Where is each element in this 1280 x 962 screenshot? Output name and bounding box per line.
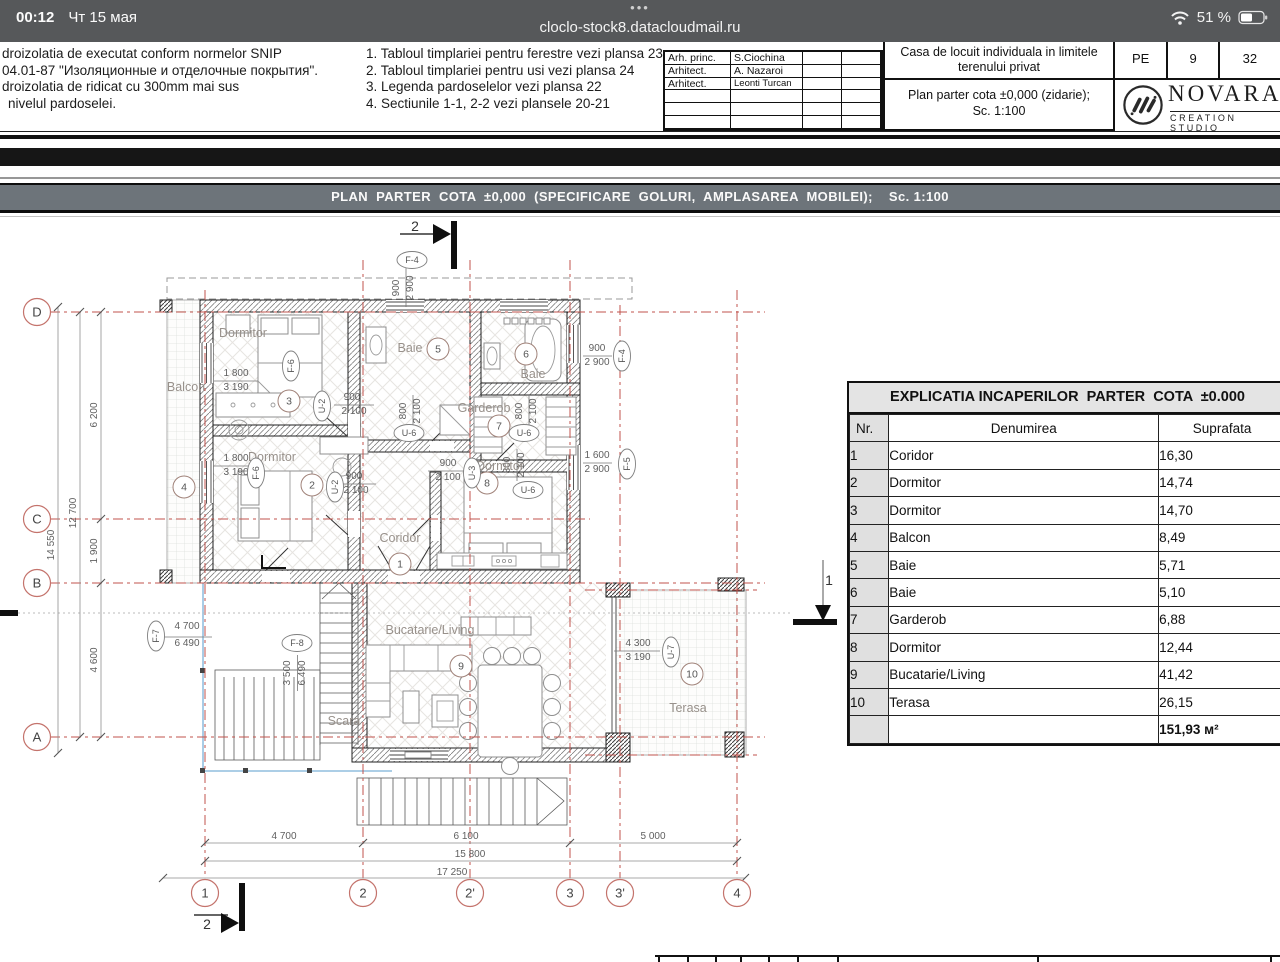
- drawing-scale: Sc. 1:100: [885, 103, 1113, 119]
- note-line: 1. Tabloul timplariei pentru ferestre ve…: [366, 46, 663, 63]
- dimension-label: 800: [398, 402, 409, 419]
- opening-tag-label: U-2: [330, 480, 340, 495]
- battery-percent: 51 %: [1197, 9, 1231, 26]
- table-cell: Baie: [889, 551, 1159, 578]
- header-suprafata: Suprafata: [1159, 415, 1280, 442]
- empty-cell: [842, 103, 881, 116]
- drawing-title-line: Plan parter cota ±0,000 (zidarie);: [885, 87, 1113, 103]
- room-number-label: 10: [686, 669, 698, 681]
- note-line: droizolatia de executat conform normelor…: [2, 46, 318, 63]
- dimension-label: 6 490: [174, 638, 199, 649]
- total-name-cell: [889, 716, 1159, 743]
- notes-right: 1. Tabloul timplariei pentru ferestre ve…: [366, 46, 663, 112]
- novara-logo-icon: [1120, 82, 1166, 128]
- opening-tag-label: F-5: [622, 457, 632, 471]
- section-label: 2: [203, 916, 211, 932]
- logo: NOVARA CREATION STUDIO: [1115, 80, 1280, 130]
- room-label: Garderob: [458, 401, 511, 415]
- table-cell: 12,44: [1159, 634, 1280, 661]
- status-bar: 00:12Чт 15 мая ••• cloclo-stock8.dataclo…: [0, 0, 1280, 42]
- kitchen-counter: [437, 553, 567, 569]
- table-row: 2Dormitor14,74: [850, 469, 1280, 496]
- section-marker-1-right: [793, 560, 837, 625]
- opening-tag-label: U-3: [467, 466, 477, 481]
- dimension-label: 17 250: [437, 867, 468, 878]
- opening-tag-label: F-6: [286, 359, 296, 373]
- divider: [0, 131, 1280, 132]
- room-label: Balcon: [167, 380, 205, 394]
- dimension-label: 6 490: [297, 660, 308, 685]
- table-row: 9Bucatarie/Living41,42: [850, 661, 1280, 688]
- opening-tag-label: F-4: [617, 349, 627, 363]
- table-header-row: Nr. Denumirea Suprafata: [850, 415, 1280, 442]
- dimension-label: 4 700: [271, 831, 296, 842]
- dimension-label: 2 100: [341, 406, 366, 417]
- divider: [0, 135, 1280, 139]
- room-number-label: 7: [496, 421, 502, 433]
- empty-cell: [803, 52, 842, 65]
- empty-cell: [803, 103, 842, 116]
- axis-bubble-label: A: [33, 730, 42, 745]
- total-nr-cell: [850, 716, 889, 743]
- table-row: 8Dormitor12,44: [850, 634, 1280, 661]
- table-cell: Dormitor: [889, 634, 1159, 661]
- drawing-title: Plan parter cota ±0,000 (zidarie); Sc. 1…: [885, 80, 1113, 135]
- room-number-label: 8: [484, 478, 490, 490]
- dimension-label: 6 200: [89, 402, 100, 427]
- room-label: Baie: [520, 367, 545, 381]
- sheet-total-cell: 32: [1220, 42, 1280, 78]
- dimension-label: 3 190: [223, 467, 248, 478]
- axis-bubble-label: 3': [615, 886, 625, 901]
- table-cell: 10: [850, 688, 889, 715]
- tv-stand: [432, 695, 458, 727]
- room-label: Scara: [328, 714, 361, 728]
- empty-cell: [842, 90, 881, 103]
- dimension-label: 12 700: [68, 497, 79, 528]
- table-cell: 14,74: [1159, 469, 1280, 496]
- table-cell: 5: [850, 551, 889, 578]
- table-cell: 8: [850, 634, 889, 661]
- room-label: Bucatarie/Living: [386, 623, 475, 637]
- divider: [0, 177, 1280, 179]
- logo-name: NOVARA: [1168, 81, 1280, 107]
- role-cell: Arhitect.: [665, 78, 731, 91]
- empty-cell: [665, 103, 731, 116]
- dimension-label: 14 550: [46, 529, 57, 560]
- room-table-body: 1Coridor16,302Dormitor14,743Dormitor14,7…: [850, 442, 1280, 716]
- table-cell: Dormitor: [889, 497, 1159, 524]
- dimension-label: 1 600: [584, 450, 609, 461]
- table-cell: 9: [850, 661, 889, 688]
- room-label: Baie: [397, 341, 422, 355]
- role-cell: Arhitect.: [665, 65, 731, 78]
- table-cell: 6: [850, 579, 889, 606]
- table-cell: Terasa: [889, 688, 1159, 715]
- dimension-label: 900: [391, 279, 402, 296]
- table-cell: 1: [850, 442, 889, 469]
- header-denumirea: Denumirea: [889, 415, 1159, 442]
- table-title: EXPLICATIA INCAPERILOR PARTER COTA ±0.00…: [849, 383, 1280, 414]
- note-line: 3. Legenda pardoselelor vezi plansa 22: [366, 79, 663, 96]
- note-line: 2. Tabloul timplariei pentru usi vezi pl…: [366, 63, 663, 80]
- empty-cell: [803, 65, 842, 78]
- dimension-label: 3 500: [282, 660, 293, 685]
- table-cell: 26,15: [1159, 688, 1280, 715]
- dimension-label: 6 100: [453, 831, 478, 842]
- empty-cell: [731, 90, 803, 103]
- dimension-label: 800: [514, 402, 525, 419]
- section-label: 2: [411, 218, 419, 234]
- axis-bubble-label: 2': [465, 886, 475, 901]
- dimension-label: 1 900: [89, 538, 100, 563]
- room-number-label: 9: [458, 661, 464, 673]
- role-cell: Arh. princ.: [665, 52, 731, 65]
- table-cell: 7: [850, 606, 889, 633]
- table-cell: 6,88: [1159, 606, 1280, 633]
- axis-bubble-label: B: [33, 576, 42, 591]
- opening-tag-label: F-7: [151, 629, 161, 643]
- axis-bubble-label: C: [32, 512, 41, 527]
- empty-cell: [803, 78, 842, 91]
- dimension-label: 900: [344, 392, 361, 403]
- note-line: 4. Sectiunile 1-1, 2-2 vezi plansele 20-…: [366, 96, 663, 113]
- dimension-label: 2 100: [343, 485, 368, 496]
- empty-cell: [842, 116, 881, 129]
- bottom-sheet-edge: [655, 955, 1280, 957]
- dimension-label: 900: [346, 471, 363, 482]
- dimension-label: 900: [589, 343, 606, 354]
- total-area: 151,93 м²: [1159, 716, 1280, 743]
- black-strip: [0, 148, 1280, 166]
- room-label: Coridor: [380, 531, 421, 545]
- empty-cell: [665, 116, 731, 129]
- empty-cell: [842, 52, 881, 65]
- url-bar[interactable]: cloclo-stock8.datacloudmail.ru: [0, 19, 1280, 36]
- dimension-label: 900: [440, 458, 457, 469]
- table-cell: 5,71: [1159, 551, 1280, 578]
- table-cell: 2: [850, 469, 889, 496]
- dimension-label: 2 900: [584, 464, 609, 475]
- header-nr: Nr.: [850, 415, 889, 442]
- floor-plan: 14 55012 7006 2001 9004 6004 7006 1005 0…: [0, 215, 845, 960]
- project-title: Casa de locuit individuala in limitele t…: [885, 42, 1113, 80]
- axis-bubble-label: 3: [566, 886, 573, 901]
- empty-cell: [803, 90, 842, 103]
- section-marker-1-left: [0, 610, 18, 616]
- name-cell: Leonti Turcan: [731, 78, 803, 91]
- room-number-label: 5: [435, 344, 441, 356]
- opening-tag-label: U-6: [517, 428, 532, 438]
- dimension-label: 15 800: [455, 849, 486, 860]
- section-label: 1: [825, 572, 833, 588]
- dimension-label: 4 700: [174, 621, 199, 632]
- axis-bubble-label: 2: [359, 886, 366, 901]
- table-cell: 5,10: [1159, 579, 1280, 606]
- table-cell: Dormitor: [889, 469, 1159, 496]
- table-row: 1Coridor16,30: [850, 442, 1280, 469]
- room-number-label: 1: [397, 559, 403, 571]
- dimension-label: 5 000: [640, 831, 665, 842]
- table-row: 5Baie5,71: [850, 551, 1280, 578]
- opening-tag-label: U-2: [317, 399, 327, 414]
- dimension-label: 2 100: [528, 398, 539, 423]
- table-cell: 14,70: [1159, 497, 1280, 524]
- table-cell: Bucatarie/Living: [889, 661, 1159, 688]
- room-label: Dormitor: [476, 459, 524, 473]
- dimension-label: 4 300: [625, 638, 650, 649]
- name-cell: A. Nazaroi: [731, 65, 803, 78]
- table-row: 3Dormitor14,70: [850, 497, 1280, 524]
- room-number-label: 6: [523, 349, 529, 361]
- opening-tag-label: F-4: [405, 255, 419, 265]
- notes-left: droizolatia de executat conform normelor…: [2, 46, 318, 112]
- table-cell: Balcon: [889, 524, 1159, 551]
- empty-cell: [731, 103, 803, 116]
- dimension-label: 2 900: [584, 357, 609, 368]
- signature-table: Arh. princ. S.Ciochina Arhitect. A. Naza…: [663, 50, 883, 131]
- dimension-label: 2 900: [405, 275, 416, 300]
- stage-cell: PE: [1115, 42, 1168, 78]
- table-row: 6Baie5,10: [850, 579, 1280, 606]
- note-line: 04.01-87 "Изоляционные и отделочные покр…: [2, 63, 318, 80]
- project-block: Casa de locuit individuala in limitele t…: [883, 42, 1115, 131]
- coffee-table: [403, 691, 419, 723]
- logo-subtitle: CREATION STUDIO: [1170, 111, 1280, 133]
- table-cell: 41,42: [1159, 661, 1280, 688]
- table-row: 4Balcon8,49: [850, 524, 1280, 551]
- opening-tag-label: F-6: [251, 466, 261, 480]
- empty-cell: [731, 116, 803, 129]
- opening-tag-label: F-8: [290, 638, 304, 648]
- dimension-label: 1 800: [223, 453, 248, 464]
- dimension-label: 3 190: [625, 652, 650, 663]
- battery-icon: [1238, 10, 1268, 25]
- table-cell: Baie: [889, 579, 1159, 606]
- dimension-label: 4 600: [89, 647, 100, 672]
- axis-bubble-label: D: [32, 305, 41, 320]
- name-cell: S.Ciochina: [731, 52, 803, 65]
- table-cell: Garderob: [889, 606, 1159, 633]
- axis-bubble-label: 1: [201, 886, 208, 901]
- axis-bubble-label: 4: [733, 886, 740, 901]
- browser-menu-dots[interactable]: •••: [0, 0, 1280, 15]
- table-row: 10Terasa26,15: [850, 688, 1280, 715]
- table-cell: 4: [850, 524, 889, 551]
- opening-tag-label: U-6: [521, 485, 536, 495]
- table-total-row: 151,93 м²: [850, 716, 1280, 743]
- dimension-label: 3 190: [223, 382, 248, 393]
- room-number-label: 4: [181, 482, 187, 494]
- status-right: 51 %: [1170, 9, 1268, 26]
- title-block: droizolatia de executat conform normelor…: [0, 42, 1280, 138]
- room-explication-table: EXPLICATIA INCAPERILOR PARTER COTA ±0.00…: [847, 381, 1280, 746]
- bath-sink-5: [366, 327, 386, 363]
- room-label: Terasa: [669, 701, 707, 715]
- note-line: droizolatia de ridicat cu 300mm mai sus: [2, 79, 318, 96]
- dimension-label: 2 100: [435, 472, 460, 483]
- table-cell: 3: [850, 497, 889, 524]
- sheet-number-cell: 9: [1168, 42, 1219, 78]
- table-cell: Coridor: [889, 442, 1159, 469]
- room-number-label: 2: [309, 480, 315, 492]
- table-cell: 8,49: [1159, 524, 1280, 551]
- plan-banner: PLAN PARTER COTA ±0,000 (SPECIFICARE GOL…: [0, 183, 1280, 213]
- empty-cell: [842, 78, 881, 91]
- empty-cell: [842, 65, 881, 78]
- note-line: nivelul pardoselei.: [2, 96, 318, 113]
- room-number-label: 3: [286, 396, 292, 408]
- wifi-icon: [1170, 10, 1190, 25]
- opening-tag-label: U-7: [666, 645, 676, 660]
- opening-tag-label: U-6: [402, 428, 417, 438]
- dimension-label: 1 800: [223, 368, 248, 379]
- exterior-stairs: [357, 778, 567, 825]
- room-label: Dormitor: [219, 326, 267, 340]
- dimension-label: 2 100: [412, 398, 423, 423]
- empty-cell: [665, 90, 731, 103]
- sheet-info-block: PE 9 32 NOVARA CREATION STUDIO: [1115, 42, 1280, 131]
- table-cell: 16,30: [1159, 442, 1280, 469]
- bath-sink-6: [484, 343, 500, 369]
- empty-cell: [803, 116, 842, 129]
- table-row: 7Garderob6,88: [850, 606, 1280, 633]
